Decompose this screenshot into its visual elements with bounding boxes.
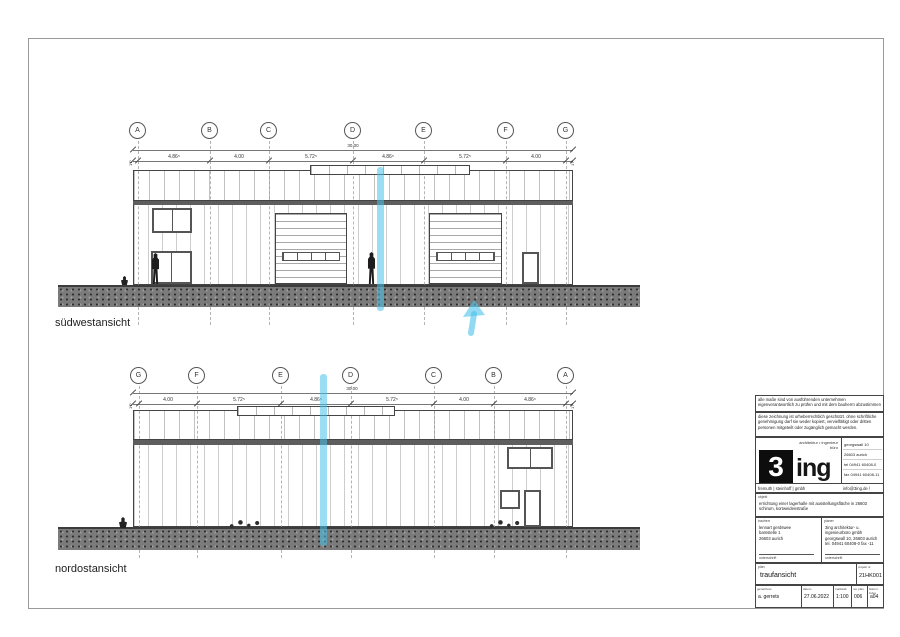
field-label: plan	[758, 565, 765, 569]
dimension-label: 4.00	[148, 397, 188, 403]
window-pair	[507, 447, 553, 469]
cell-value: a04	[870, 594, 878, 600]
field-label: projekt nr.	[858, 565, 871, 569]
plan-section: plan traufansicht projekt nr. 21HK001	[755, 563, 884, 585]
highlight-arrow-icon	[448, 298, 500, 336]
view-label-southwest: südwestansicht	[55, 317, 130, 329]
cell-label: datum	[803, 587, 811, 591]
parties-section: bauherr lennart gerdswee barsstelle 1 26…	[755, 517, 884, 563]
dimension-label: 5.72⁵	[291, 154, 331, 160]
divider	[841, 438, 842, 483]
highlight-marker-line	[320, 374, 327, 546]
dimension-label: 5.72⁵	[372, 397, 412, 403]
cell-value: a. gerrets	[758, 594, 779, 600]
contact-line: fax 04941 60408-11	[843, 470, 882, 479]
firm-name: fremuth | steinhoff | gmbh	[758, 486, 805, 491]
side-door	[524, 490, 541, 527]
cell-datum: datum 27.06.2022	[801, 586, 834, 607]
bauherr-cell: bauherr lennart gerdswee barsstelle 1 26…	[756, 518, 821, 562]
cell-massstab: maßstab 1:100	[833, 586, 852, 607]
logo-mark: 3	[759, 450, 793, 484]
roof-parapet	[310, 165, 470, 175]
dimension-label: 5.72⁵	[445, 154, 485, 160]
objekt-text: errichtung einer lagerhalle mit ausstell…	[759, 501, 879, 512]
revision-row: gezeichnet a. gerrets datum 27.06.2022 m…	[755, 585, 884, 608]
cell-label: gezeichnet	[757, 587, 772, 591]
dimension-label: 4.86⁵	[296, 397, 336, 403]
note-text: diese zeichnung ist urheberrechtlich ges…	[758, 414, 881, 430]
ground-band	[58, 285, 640, 307]
logo-tagline: architektur • ingenieur büro	[794, 440, 838, 450]
objekt-section: objekt errichtung einer lagerhalle mit a…	[755, 493, 884, 517]
grid-letter: F	[194, 372, 198, 379]
cell-value: 006	[854, 594, 862, 600]
grid-bubble: D	[344, 122, 361, 139]
field-label: bauherr	[758, 519, 770, 523]
grid-bubble: B	[485, 367, 502, 384]
dimension-label: 4.00	[444, 397, 484, 403]
cell-value: 27.06.2022	[804, 594, 829, 600]
highlight-marker-line	[377, 167, 384, 311]
dimension-end: 17⁵	[570, 403, 575, 409]
grid-letter: E	[421, 127, 426, 134]
grid-bubble: C	[425, 367, 442, 384]
dimension-line-total	[133, 150, 573, 151]
dimension-label: 4.86⁵	[368, 154, 408, 160]
field-label: planer	[824, 519, 834, 523]
grid-letter: G	[136, 372, 141, 379]
note-responsibility: alle maße sind von ausführenden unterneh…	[755, 395, 884, 412]
note-text: alle maße sind von ausführenden unterneh…	[758, 397, 881, 408]
gate-window-strip	[436, 252, 496, 261]
ground-band	[58, 527, 640, 550]
grid-letter: F	[503, 127, 507, 134]
facade-dark-band	[133, 440, 573, 445]
grid-letter: E	[278, 372, 283, 379]
dimension-line-segments	[133, 404, 573, 405]
dimension-label: 4.00	[516, 154, 556, 160]
grid-bubble: C	[260, 122, 277, 139]
grid-bubble: A	[557, 367, 574, 384]
dimension-end: 17⁵	[128, 403, 133, 409]
shrub-sketch	[486, 517, 524, 529]
planer-cell: planer 3ing architektur- u. ingenieurbür…	[822, 518, 884, 562]
dimension-total: 30.00	[338, 143, 368, 148]
bauherr-line: 26603 aurich	[759, 536, 819, 541]
signature-label: unterschrift	[825, 556, 842, 560]
rollup-gate	[275, 213, 347, 284]
note-copyright: diese zeichnung ist urheberrechtlich ges…	[755, 412, 884, 437]
contact-line: tel 04941 60408-0	[843, 460, 882, 470]
grid-letter: C	[431, 372, 436, 379]
planer-lines: 3ing architektur- u. ingenieurbüro gmbh …	[825, 525, 883, 547]
grid-bubble: F	[497, 122, 514, 139]
shrub-sketch	[226, 517, 264, 529]
gate-window-strip	[282, 252, 341, 261]
signature-line	[825, 554, 880, 555]
window	[152, 208, 192, 233]
rollup-gate	[429, 213, 502, 284]
grid-letter: B	[207, 127, 212, 134]
bauherr-lines: lennart gerdswee barsstelle 1 26603 auri…	[759, 525, 819, 541]
project-number: 21HK001	[859, 573, 882, 579]
cell-label: maßstab	[835, 587, 847, 591]
cell-norplan: nor plan 006	[851, 586, 868, 607]
dimension-line-total	[133, 393, 573, 394]
logo-block: 3 ing architektur • ingenieur büro georg…	[755, 437, 884, 493]
grid-bubble: D	[342, 367, 359, 384]
view-label-northeast: nordostansicht	[55, 563, 127, 575]
roof-parapet	[237, 406, 395, 416]
dimension-label: 5.72⁵	[219, 397, 259, 403]
field-label: objekt	[758, 495, 767, 499]
grid-letter: A	[135, 127, 140, 134]
facade-dark-band	[133, 201, 573, 205]
cell-blattnr: blatt nr. index a04	[867, 586, 884, 607]
firm-web: info@3ing.de / www.3ing.de	[843, 486, 883, 493]
contact-line: 26603 aurich	[843, 450, 882, 460]
logo-word: ing	[796, 454, 831, 483]
grid-letter: D	[348, 372, 353, 379]
logo-footer: fremuth | steinhoff | gmbh info@3ing.de …	[756, 483, 883, 493]
contact-info: georgswall 10 26603 aurich tel 04941 604…	[843, 440, 882, 479]
grid-bubble: B	[201, 122, 218, 139]
grid-bubble: G	[557, 122, 574, 139]
dimension-end: 17⁵	[570, 160, 575, 166]
small-window	[500, 490, 520, 509]
signature-line	[759, 554, 814, 555]
dimension-total: 30.00	[337, 386, 367, 391]
side-door	[522, 252, 539, 284]
signature-label: unterschrift	[759, 556, 776, 560]
dimension-label: 4.86⁵	[154, 154, 194, 160]
plan-title: traufansicht	[760, 572, 796, 579]
cell-gezeichnet: gezeichnet a. gerrets	[756, 586, 801, 607]
planer-line: tel. 04941 60408-0 fax -11	[825, 541, 883, 546]
planer-line: 3ing architektur- u. ingenieurbüro gmbh	[825, 525, 883, 536]
cell-value: 1:100	[836, 594, 849, 600]
grid-bubble: G	[130, 367, 147, 384]
grid-letter: G	[563, 127, 568, 134]
grid-bubble: E	[415, 122, 432, 139]
drawing-sheet: A B C D E F G 30.00 4.86⁵ 4.00 5.72⁵ 4.8…	[0, 0, 900, 637]
grid-letter: C	[266, 127, 271, 134]
grid-letter: D	[350, 127, 355, 134]
grid-bubble: A	[129, 122, 146, 139]
grid-bubble: E	[272, 367, 289, 384]
dimension-label: 4.00	[219, 154, 259, 160]
dimension-label: 4.86⁵	[510, 397, 550, 403]
grid-letter: A	[563, 372, 568, 379]
grid-bubble: F	[188, 367, 205, 384]
divider	[856, 564, 857, 584]
contact-line: georgswall 10	[843, 440, 882, 450]
grid-letter: B	[491, 372, 496, 379]
dimension-end: 17⁵	[128, 160, 133, 166]
cell-label: nor plan	[853, 587, 864, 591]
